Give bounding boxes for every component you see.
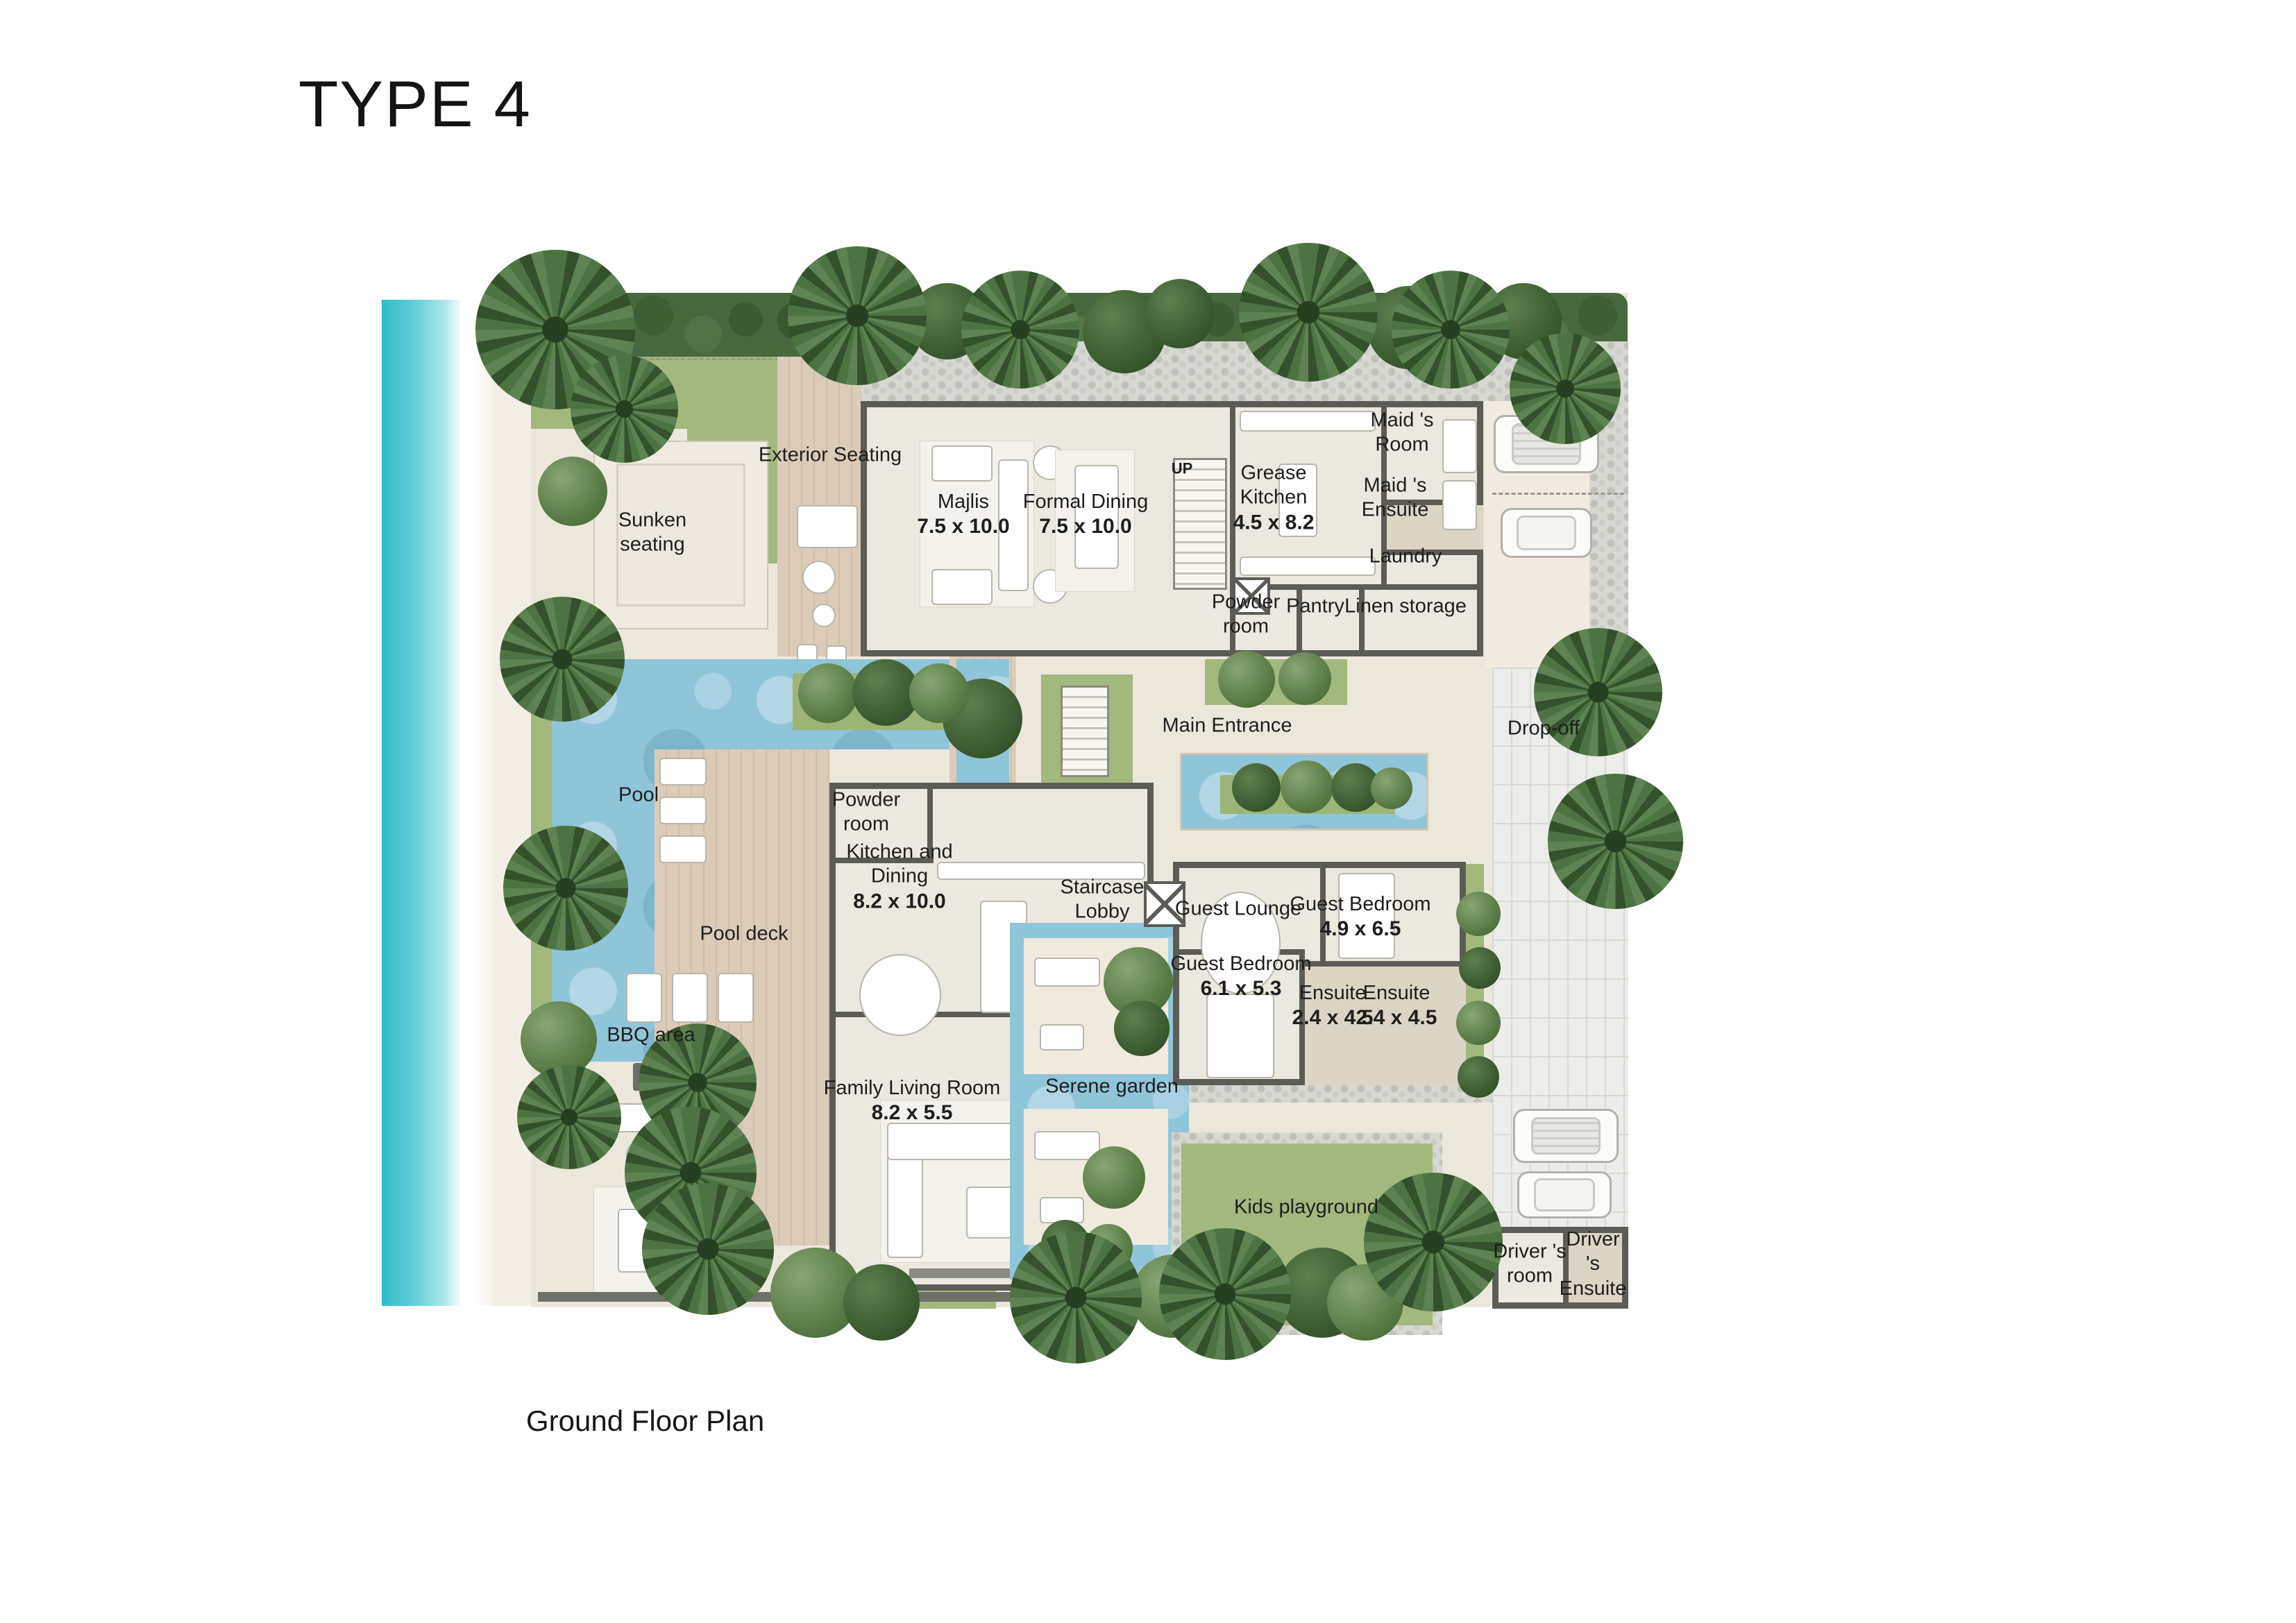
majlis-loveseat-icon	[931, 569, 993, 605]
label-kitchen-dining: Kitchen and Dining8.2 x 10.0	[846, 840, 952, 914]
label-text: Pool	[618, 783, 659, 807]
planter-tree-icon	[1278, 652, 1331, 705]
label-drop-off: Drop-off	[1508, 716, 1580, 740]
label-family-living-room: Family Living Room8.2 x 5.5	[824, 1076, 1001, 1126]
label-text: Sunken seating	[618, 509, 686, 558]
palm-tree-icon	[1010, 1232, 1142, 1363]
label-text: UP	[1172, 460, 1193, 479]
label-text: Family Living Room	[824, 1076, 1001, 1101]
surf-foam	[446, 300, 498, 1306]
label-text: Majlis	[938, 490, 989, 514]
label-text: Laundry	[1369, 544, 1442, 568]
palm-tree-icon	[788, 246, 927, 385]
label-bbq-area: BBQ area	[607, 1023, 695, 1047]
majlis-loveseat-icon	[931, 445, 993, 482]
lounger-icon	[672, 973, 708, 1023]
strip-shrub-icon	[1456, 892, 1501, 936]
label-text: Grease Kitchen	[1240, 461, 1308, 510]
label-text: Driver 's room	[1493, 1240, 1566, 1289]
palm-tree-icon	[571, 355, 678, 463]
label-text: BBQ area	[607, 1023, 695, 1047]
round-sofa-icon	[859, 954, 941, 1036]
garden-shrub-icon	[1083, 1146, 1145, 1209]
strip-shrub-icon	[1459, 947, 1501, 989]
label-text: Powder room	[832, 788, 900, 838]
parked-car-top-icon	[1501, 508, 1592, 558]
palm-tree-icon	[961, 271, 1079, 389]
label-text: Kids playground	[1234, 1195, 1378, 1219]
label-drivers-room: Driver 's room	[1493, 1240, 1566, 1289]
label-text: Guest Lounge	[1175, 897, 1301, 921]
palm-tree-icon	[1159, 1228, 1291, 1360]
planter-shrub-icon	[1232, 763, 1281, 812]
label-kids-playground: Kids playground	[1234, 1195, 1378, 1219]
pool-planter-shrub-icon	[798, 663, 858, 723]
label-text: Exterior Seating	[759, 443, 902, 467]
parking-divider	[1492, 493, 1624, 495]
label-ensuite-2: Ensuite2.4 x 4.5	[1356, 981, 1437, 1031]
pool-step-icon	[659, 758, 707, 785]
site-plan: Exterior Seating Sunken seating Majlis7.…	[382, 264, 1631, 1318]
label-dim: 8.2 x 10.0	[853, 889, 945, 915]
palm-tree-icon	[517, 1065, 621, 1169]
lobby-stair-flight	[1061, 686, 1109, 777]
outdoor-side-table-icon	[812, 604, 836, 627]
label-linen-storage: Linen storage	[1344, 594, 1467, 618]
hedge-bush-icon	[1145, 279, 1215, 348]
label-guest-lounge: Guest Lounge	[1175, 897, 1301, 921]
page-title: TYPE 4	[298, 67, 532, 142]
label-text: Powder room	[1212, 590, 1280, 640]
maid-bed-icon	[1442, 419, 1477, 473]
label-dim: 6.1 x 5.3	[1201, 976, 1282, 1002]
label-pantry: Pantry	[1286, 594, 1344, 618]
outdoor-table-icon	[802, 561, 836, 594]
label-sunken-seating: Sunken seating	[618, 509, 686, 558]
label-text: Kitchen and Dining	[846, 840, 952, 889]
palm-tree-icon	[1239, 243, 1378, 382]
label-dim: 2.4 x 4.5	[1356, 1005, 1437, 1031]
label-dim: 7.5 x 10.0	[1039, 514, 1131, 540]
label-text: Pantry	[1286, 594, 1344, 618]
label-text: Drop-off	[1508, 716, 1580, 740]
garden-shrub-icon	[1114, 1001, 1170, 1056]
palm-tree-icon	[642, 1183, 774, 1315]
label-text: Formal Dining	[1023, 490, 1149, 514]
label-powder-room-service: Powder room	[1212, 590, 1280, 640]
garden-bench-icon	[1040, 1024, 1084, 1051]
palm-tree-icon	[503, 826, 628, 951]
lounger-icon	[718, 973, 754, 1023]
kitchen-counter-icon	[1240, 411, 1376, 432]
label-main-entrance: Main Entrance	[1163, 713, 1292, 738]
gravel-path-guestwing	[1173, 1085, 1499, 1103]
pool-step-icon	[659, 797, 707, 824]
planter-shrub-icon	[1281, 760, 1333, 813]
label-text: Serene garden	[1045, 1074, 1179, 1098]
label-exterior-seating: Exterior Seating	[759, 443, 902, 467]
label-text: Guest Bedroom	[1290, 892, 1430, 917]
label-pool-deck: Pool deck	[700, 921, 788, 946]
label-grease-kitchen: Grease Kitchen4.5 x 8.2	[1233, 461, 1315, 535]
label-text: Main Entrance	[1163, 713, 1292, 738]
strip-shrub-icon	[1456, 1001, 1501, 1045]
label-maids-ensuite: Maid 's Ensuite	[1362, 474, 1429, 523]
guest-bed-icon	[1206, 994, 1274, 1078]
label-laundry: Laundry	[1369, 544, 1442, 568]
label-powder-room: Powder room	[832, 788, 900, 838]
label-serene-garden: Serene garden	[1045, 1074, 1179, 1098]
label-staircase-lobby: Staircase Lobby	[1061, 876, 1145, 925]
plan-caption: Ground Floor Plan	[526, 1404, 764, 1438]
planter-shrub-icon	[1371, 767, 1412, 809]
label-dim: 4.9 x 6.5	[1320, 917, 1401, 942]
label-guest-bedroom-2: Guest Bedroom6.1 x 5.3	[1170, 952, 1311, 1002]
parked-truck-bottom-icon	[1513, 1109, 1619, 1163]
beach-sand	[493, 300, 534, 1306]
label-drivers-ensuite: Driver 's Ensuite	[1560, 1227, 1627, 1301]
label-dim: 8.2 x 5.5	[872, 1101, 953, 1126]
label-text: Staircase Lobby	[1061, 876, 1145, 925]
palm-tree-icon	[500, 597, 625, 722]
palm-tree-icon	[1364, 1173, 1503, 1311]
maid-bed-icon	[1442, 480, 1477, 530]
palm-tree-icon	[1392, 271, 1510, 389]
strip-shrub-icon	[1458, 1056, 1499, 1098]
label-dim: 7.5 x 10.0	[917, 514, 1009, 540]
bottom-bush-icon	[843, 1264, 920, 1341]
label-maids-room: Maid 's Room	[1371, 409, 1434, 458]
garden-sofa-icon	[1034, 958, 1100, 987]
label-text: Maid 's Ensuite	[1362, 474, 1429, 523]
label-pool: Pool	[618, 783, 659, 807]
lounger-icon	[626, 973, 662, 1023]
palm-tree-icon	[1510, 333, 1621, 444]
kitchen-counter-icon	[1240, 556, 1376, 576]
label-text: Linen storage	[1344, 594, 1467, 618]
floor-plan-page: TYPE 4	[0, 0, 2296, 1623]
label-text: Guest Bedroom	[1170, 952, 1311, 976]
label-majlis: Majlis7.5 x 10.0	[917, 490, 1009, 540]
label-text: Pool deck	[700, 921, 788, 946]
parked-car-bottom-icon	[1517, 1171, 1612, 1218]
palm-tree-icon	[1548, 774, 1683, 909]
pool-step-icon	[659, 835, 707, 863]
planter-tree-icon	[1218, 651, 1275, 708]
outdoor-sofa-icon	[797, 505, 858, 548]
wall-bottom-row	[1235, 584, 1483, 590]
wall-bedroom1-ensuite	[1299, 961, 1466, 967]
label-formal-dining: Formal Dining7.5 x 10.0	[1023, 490, 1149, 540]
label-guest-bedroom-1: Guest Bedroom4.9 x 6.5	[1290, 892, 1430, 942]
label-dim: 4.5 x 8.2	[1233, 510, 1315, 536]
label-text: Driver 's Ensuite	[1560, 1227, 1627, 1301]
label-text: Maid 's Room	[1371, 409, 1434, 458]
label-stair-up: UP	[1172, 460, 1193, 479]
pool-planter-shrub-icon	[909, 663, 969, 723]
bush-icon	[538, 457, 607, 526]
label-text: Ensuite	[1363, 981, 1430, 1005]
